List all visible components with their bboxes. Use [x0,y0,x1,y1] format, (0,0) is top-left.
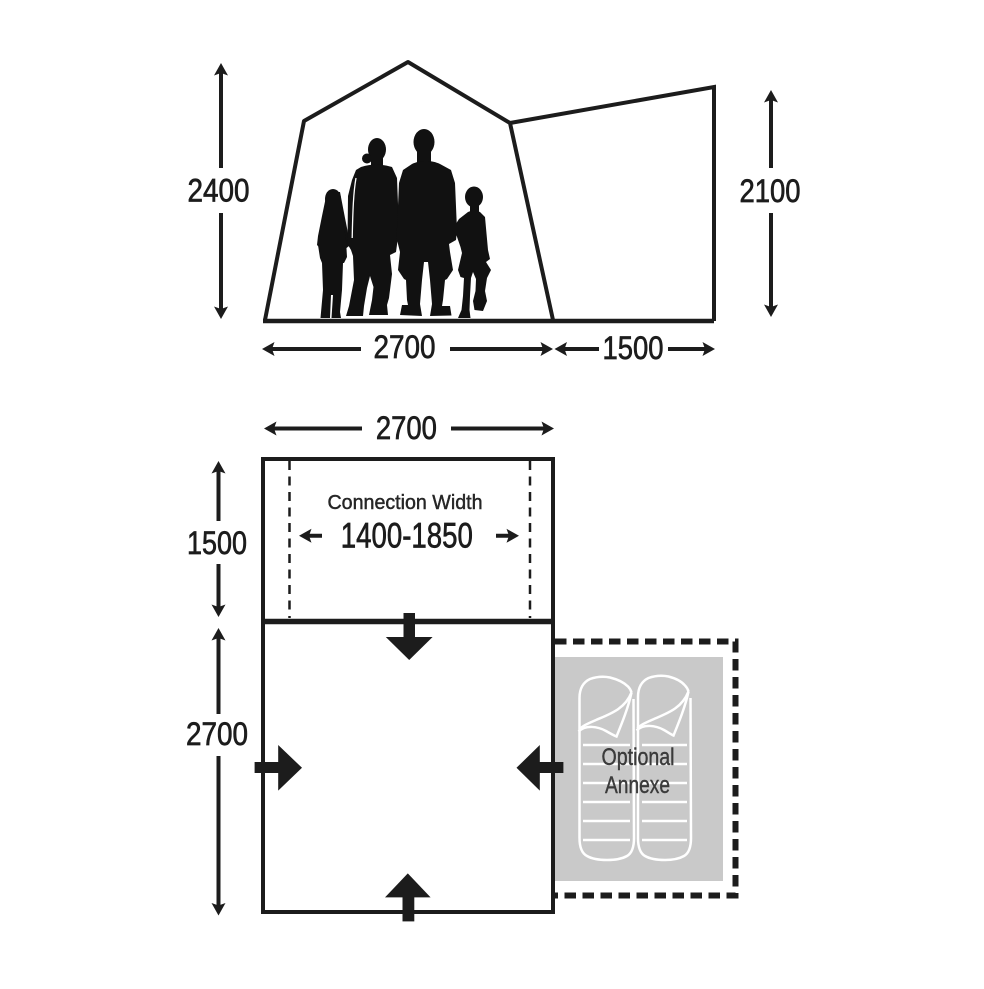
svg-text:2700: 2700 [374,329,436,365]
svg-text:1500: 1500 [187,525,247,561]
svg-text:2100: 2100 [740,173,801,209]
svg-text:Annexe: Annexe [605,772,670,799]
svg-text:Optional: Optional [602,744,675,771]
svg-text:1500: 1500 [603,330,664,366]
svg-text:2700: 2700 [376,410,437,446]
svg-text:Connection Width: Connection Width [328,491,483,514]
svg-text:2700: 2700 [186,716,248,752]
svg-text:2400: 2400 [188,173,250,209]
svg-text:1400-1850: 1400-1850 [341,517,473,556]
